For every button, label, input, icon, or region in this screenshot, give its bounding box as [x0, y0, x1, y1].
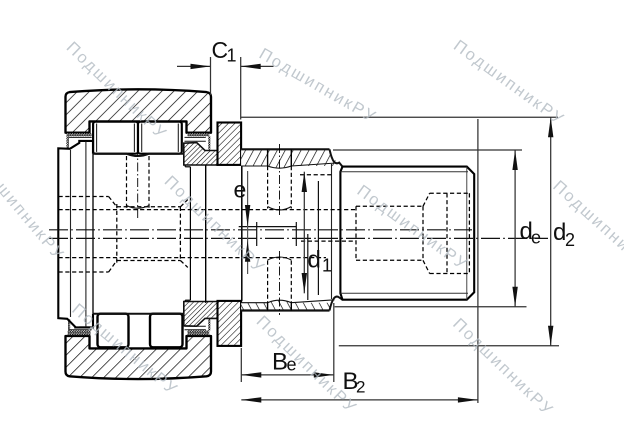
svg-text:2: 2 [356, 378, 365, 397]
svg-text:1: 1 [227, 46, 237, 66]
svg-text:2: 2 [565, 230, 575, 250]
svg-text:d: d [308, 247, 321, 274]
svg-text:1: 1 [322, 256, 332, 276]
svg-text:e: e [531, 228, 541, 248]
svg-text:e: e [234, 177, 247, 203]
